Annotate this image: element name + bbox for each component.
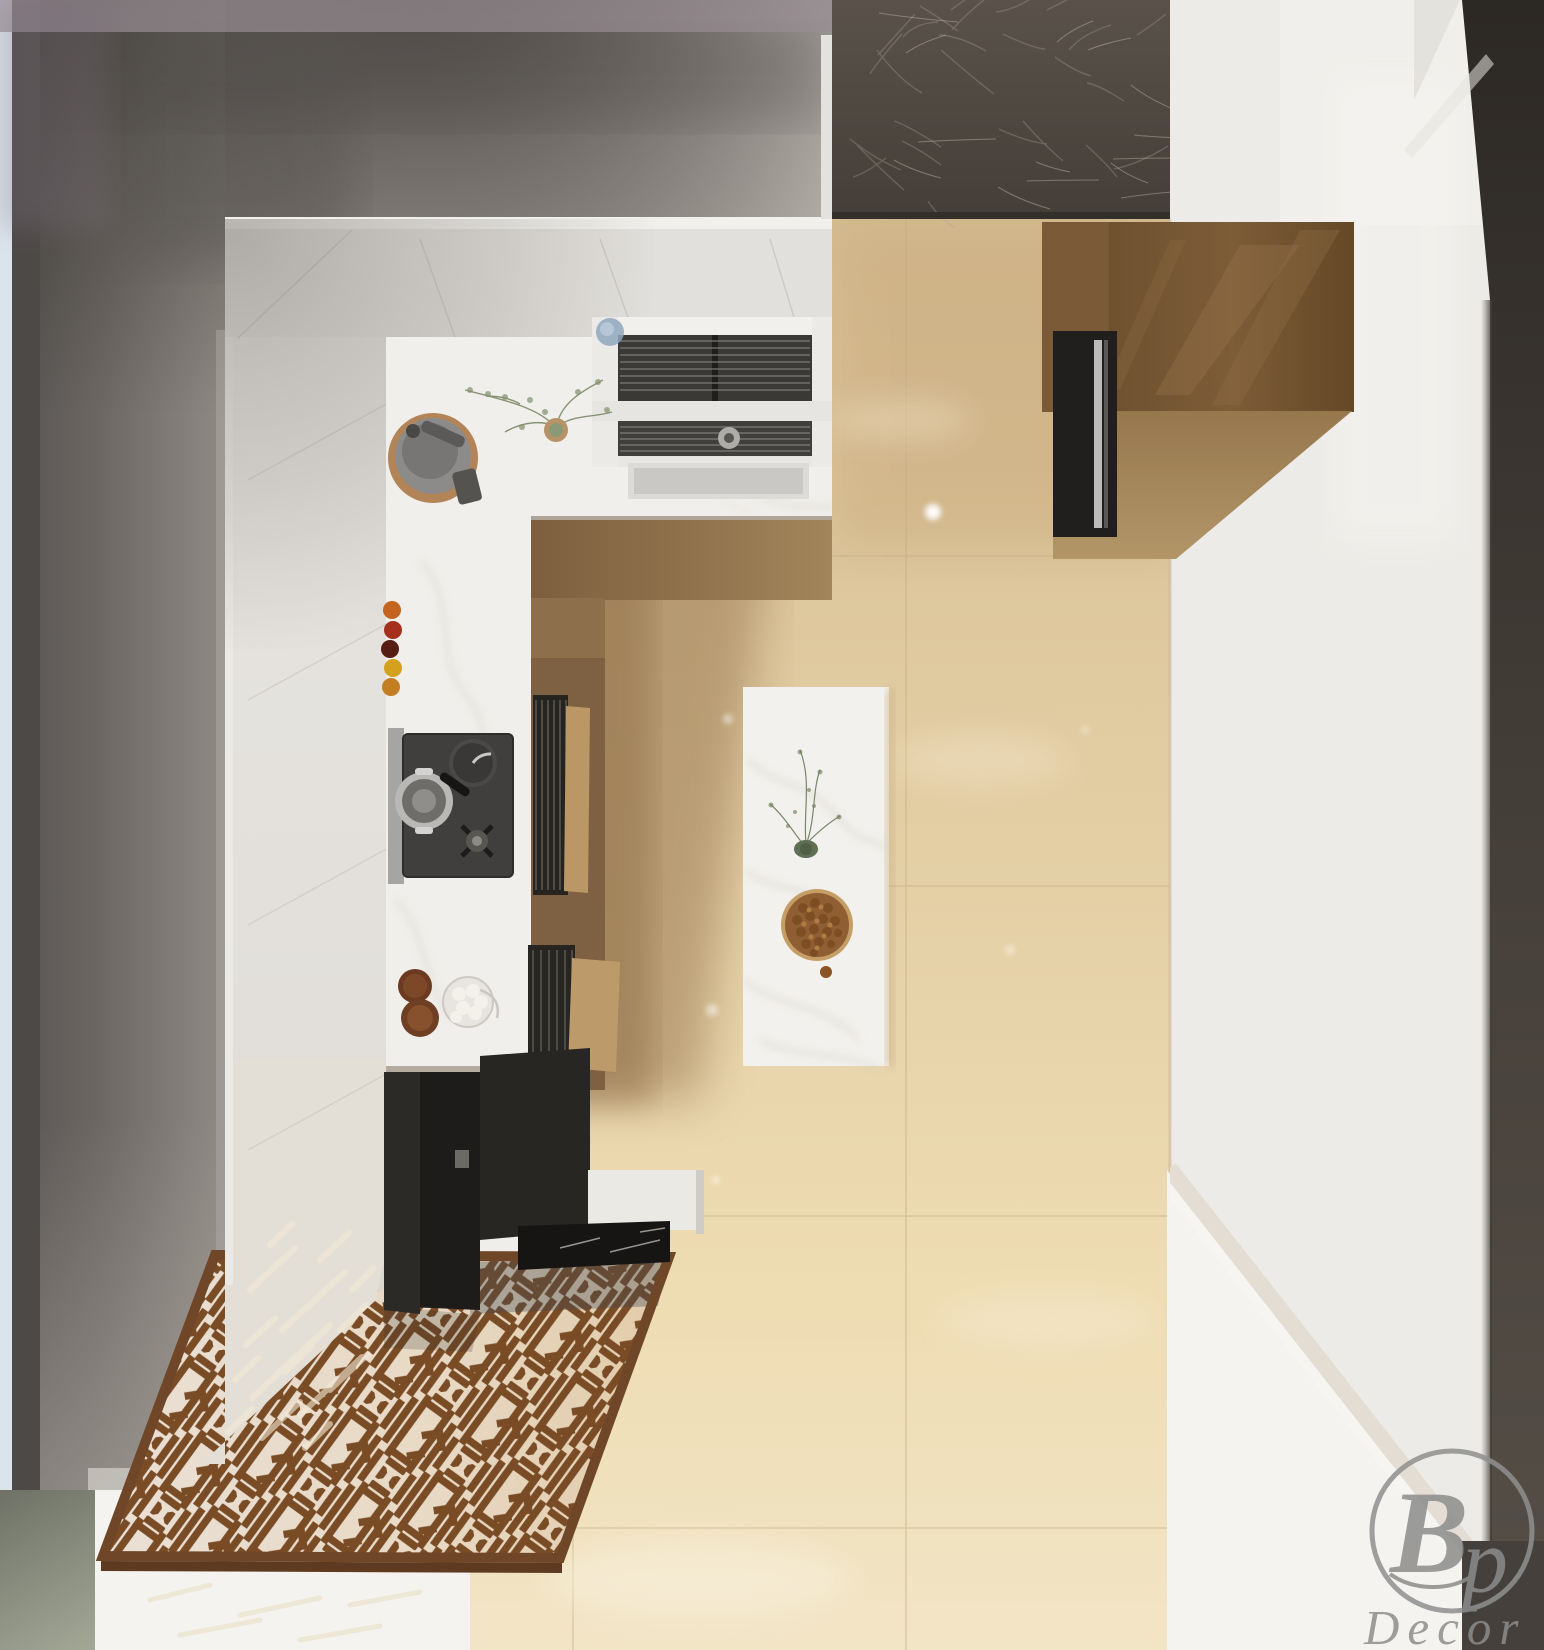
svg-text:p: p <box>1456 1510 1508 1612</box>
svg-text:Decor: Decor <box>1363 1600 1526 1650</box>
